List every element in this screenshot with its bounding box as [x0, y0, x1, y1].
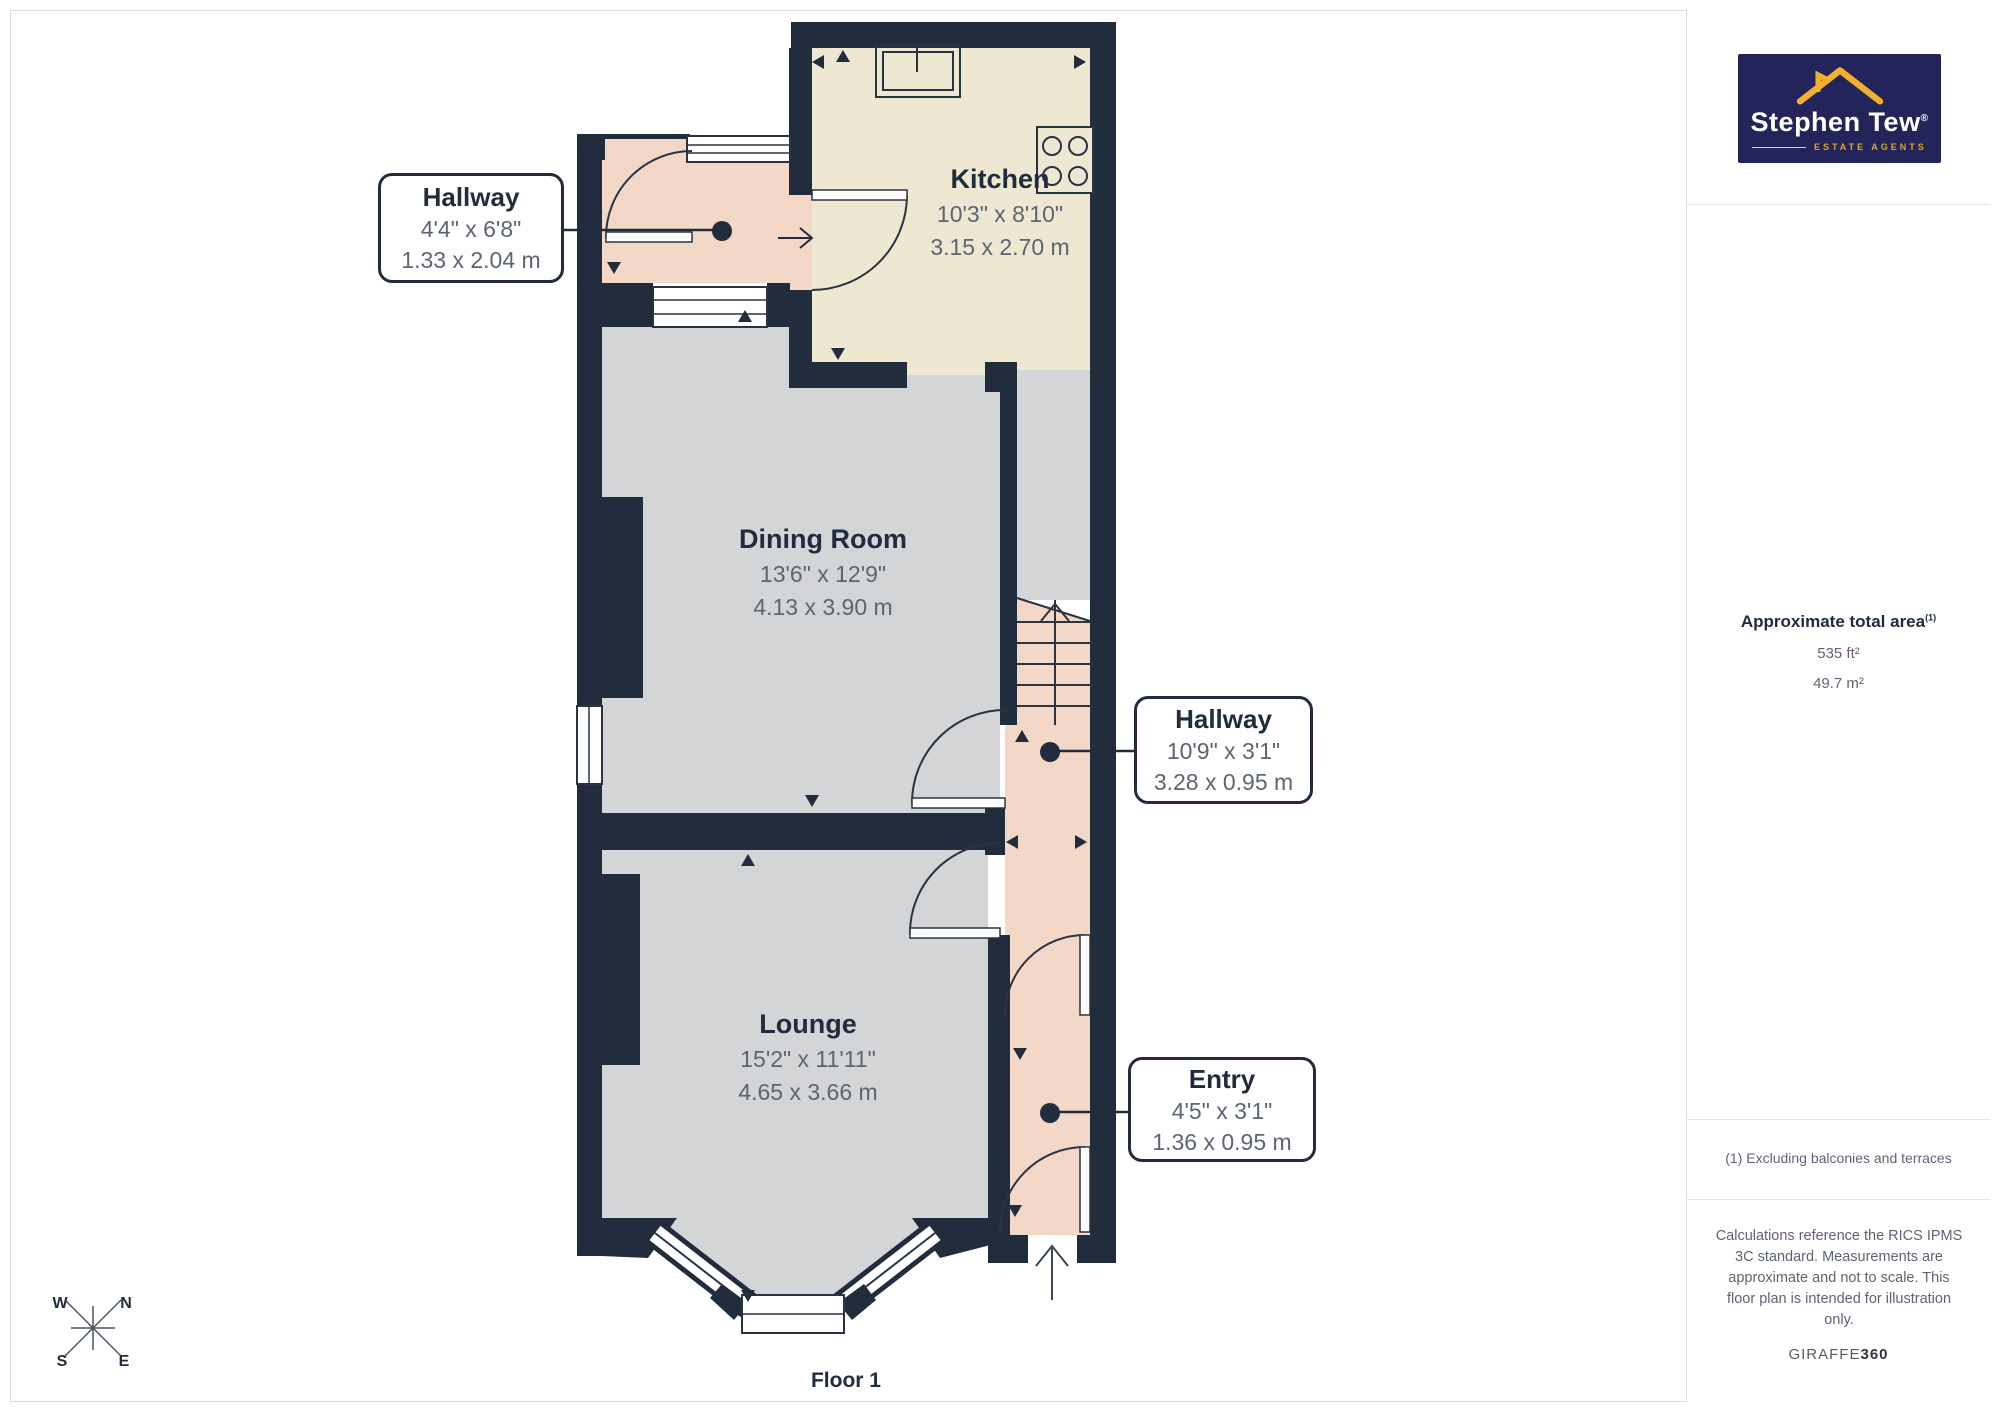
sidebar-divider — [1687, 204, 1990, 205]
room-dim-imperial: 4'5" x 3'1" — [1172, 1097, 1273, 1126]
area-footnote: (1) Excluding balconies and terraces — [1687, 1150, 1990, 1166]
room-name: Kitchen — [950, 163, 1049, 196]
compass-east: E — [119, 1353, 130, 1370]
giraffe360-logo: GIRAFFE360 — [1687, 1346, 1990, 1363]
tagline-rule — [1752, 147, 1806, 148]
roof-icon — [1794, 65, 1886, 105]
info-sidebar: Stephen Tew® ESTATE AGENTS Approximate t… — [1686, 10, 1990, 1402]
room-name: Entry — [1189, 1063, 1255, 1095]
room-dim-imperial: 15'2" x 11'11" — [740, 1045, 876, 1074]
sidebar-divider — [1687, 1199, 1990, 1200]
room-name: Hallway — [423, 181, 520, 213]
room-dim-metric: 1.36 x 0.95 m — [1152, 1128, 1291, 1157]
room-dim-metric: 4.13 x 3.90 m — [753, 593, 892, 622]
total-area-metric: 49.7 m² — [1687, 675, 1990, 692]
total-area-imperial: 535 ft² — [1687, 645, 1990, 662]
room-label-lounge: Lounge 15'2" x 11'11" 4.65 x 3.66 m — [658, 1008, 958, 1107]
sidebar-divider — [1687, 1119, 1990, 1120]
room-label-hallway-top: Hallway 4'4" x 6'8" 1.33 x 2.04 m — [378, 173, 564, 283]
room-dim-metric: 4.65 x 3.66 m — [738, 1078, 877, 1107]
room-label-hallway-mid: Hallway 10'9" x 3'1" 3.28 x 0.95 m — [1134, 696, 1313, 804]
entrance-arrow — [1036, 1246, 1068, 1300]
floor-label: Floor 1 — [766, 1369, 926, 1393]
compass-west: W — [52, 1295, 68, 1312]
room-name: Lounge — [759, 1008, 856, 1041]
room-label-entry: Entry 4'5" x 3'1" 1.36 x 0.95 m — [1128, 1057, 1316, 1162]
compass-north: N — [120, 1295, 132, 1312]
room-name: Dining Room — [739, 523, 907, 556]
room-dim-imperial: 13'6" x 12'9" — [760, 560, 886, 589]
room-label-kitchen: Kitchen 10'3" x 8'10" 3.15 x 2.70 m — [850, 163, 1150, 262]
room-name: Hallway — [1175, 703, 1272, 735]
registered-mark: ® — [1921, 113, 1929, 124]
total-area-title: Approximate total area(1) — [1687, 612, 1990, 632]
room-dim-imperial: 4'4" x 6'8" — [421, 215, 522, 244]
disclaimer-text: Calculations reference the RICS IPMS 3C … — [1713, 1226, 1965, 1331]
floor-plan: W N S E — [0, 0, 1686, 1415]
compass-south: S — [57, 1353, 68, 1370]
total-area-block: Approximate total area(1) 535 ft² 49.7 m… — [1687, 612, 1990, 692]
room-dim-metric: 3.28 x 0.95 m — [1154, 768, 1293, 797]
room-dim-imperial: 10'9" x 3'1" — [1167, 737, 1280, 766]
compass-rose: W N S E — [52, 1295, 131, 1370]
room-dim-metric: 3.15 x 2.70 m — [930, 233, 1069, 262]
room-dim-imperial: 10'3" x 8'10" — [937, 200, 1063, 229]
agency-logo: Stephen Tew® ESTATE AGENTS — [1738, 54, 1941, 163]
room-dim-metric: 1.33 x 2.04 m — [401, 246, 540, 275]
agency-tagline: ESTATE AGENTS — [1752, 142, 1927, 152]
room-label-dining-room: Dining Room 13'6" x 12'9" 4.13 x 3.90 m — [673, 523, 973, 622]
agency-name: Stephen Tew® — [1751, 107, 1929, 138]
